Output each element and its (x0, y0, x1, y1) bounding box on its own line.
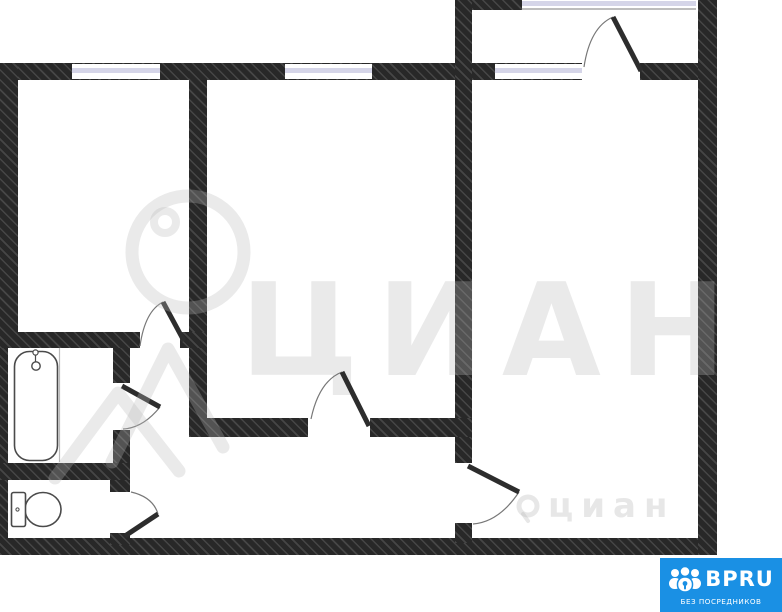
fixtures-and-doors (0, 0, 782, 612)
bathroom-door-arc (123, 407, 160, 429)
floor-plan: ЦИАН циан BPRU БЕЗ ПОСРЕДНИКОВ (0, 0, 782, 612)
balcony-door-arc (584, 17, 613, 67)
toilet-door-leaf (125, 514, 158, 536)
bathroom-door-leaf (122, 386, 160, 407)
people-icon (668, 565, 702, 595)
bathtub (15, 348, 60, 462)
logo-tagline-text: БЕЗ ПОСРЕДНИКОВ (681, 598, 762, 605)
toilet (12, 493, 62, 527)
room3-door-arc (473, 492, 519, 524)
room2-door-leaf (342, 372, 369, 426)
logo-brand-text: BPRU (705, 569, 774, 590)
balcony-door-leaf (613, 17, 641, 71)
bpru-logo: BPRU БЕЗ ПОСРЕДНИКОВ (660, 558, 782, 612)
room3-door-leaf (468, 466, 519, 492)
door-swings (122, 17, 641, 536)
toilet-door-arc (131, 492, 158, 514)
room1-door-arc (140, 302, 163, 346)
room2-door-arc (311, 372, 342, 419)
room1-door-leaf (163, 302, 184, 341)
